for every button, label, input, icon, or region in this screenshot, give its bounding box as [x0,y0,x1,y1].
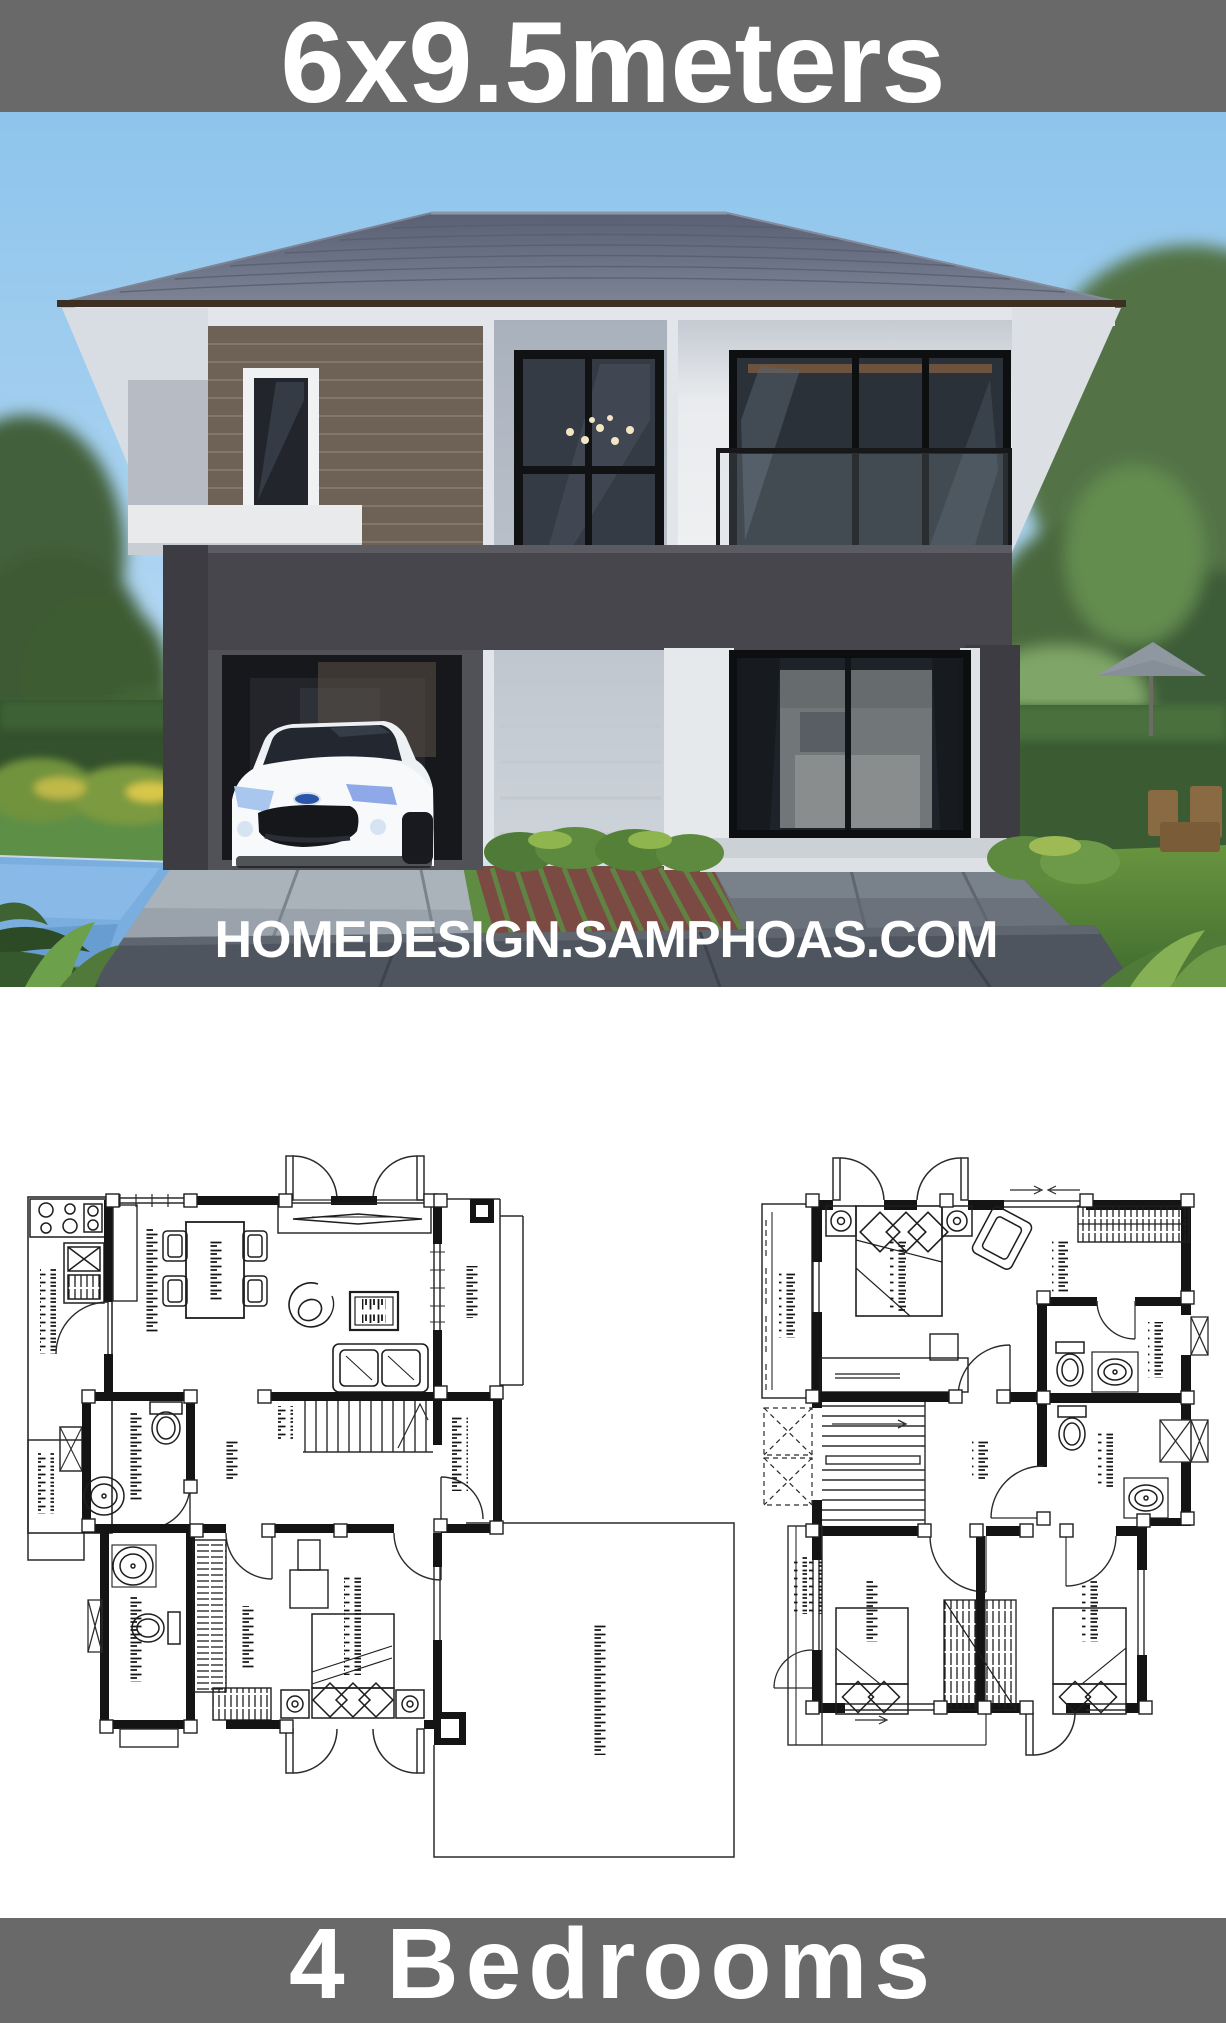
svg-text:HOMEDESIGN.SAMPHOAS.COM: HOMEDESIGN.SAMPHOAS.COM [214,911,997,969]
